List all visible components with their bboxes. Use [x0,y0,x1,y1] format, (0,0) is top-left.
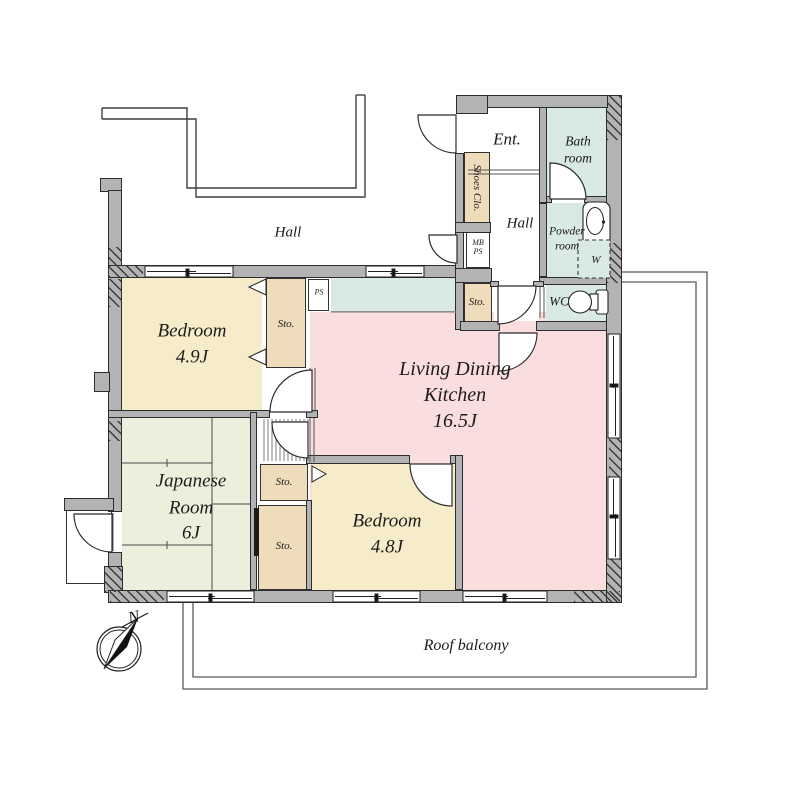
bedroom2-size-label: 4.8J [371,536,403,557]
outer-hall-label: Hall [275,225,302,242]
entrance-door [418,115,456,153]
wc-label: WC [549,295,569,310]
powder-room-label-2: room [555,241,579,254]
meter-box-label: MB PS [472,239,484,257]
alcove-door [74,514,112,552]
ldk-label-1: Living Dining [399,358,511,380]
japanese-room-label-1: Japanese [156,470,227,491]
bedroom1-door [270,370,312,412]
powder-room-label-1: Powder [549,226,585,239]
pipe-space-label: PS [315,289,324,298]
bedroom1-name-label: Bedroom [158,320,227,341]
bedroom1-size-label: 4.9J [176,346,208,367]
japanese-room-size-label: 6J [182,522,200,543]
storage-2-label: Sto. [276,540,293,552]
storage-hall-label: Sto. [469,296,486,308]
ldk-size-label: 16.5J [433,410,477,432]
washer-label: W [591,254,600,266]
linework-layer: N [0,0,800,800]
entrance-label: Ent. [493,129,521,148]
inner-hall-label: Hall [507,216,534,233]
doors [74,115,586,552]
vestibule-door [498,286,536,324]
floor-plan-canvas: N Bedroom 4.9J Japanese Room 6J Bedroom … [0,0,800,800]
japanese-room-label-2: Room [169,497,213,518]
storage-1-label: Sto. [276,476,293,488]
toilet-icon [569,290,609,314]
meter-box-label-ps: PS [472,248,484,257]
bathroom-door [550,163,586,199]
sliding-door-mark [254,508,259,556]
ldk-label-2: Kitchen [424,384,486,406]
corridor-railing [102,95,365,197]
storage-bedroom1-label: Sto. [278,318,295,330]
shoes-closet-label: Shoes Clo. [471,164,483,211]
bathroom-label-1: Bath [565,133,591,148]
bathroom-label-2: room [564,150,592,165]
compass-icon: N [97,606,148,671]
bedroom2-door [410,464,452,506]
meterbox-door [429,235,457,263]
roof-balcony-label: Roof balcony [424,637,509,655]
bedroom2-name-label: Bedroom [353,510,422,531]
nook-door [272,422,308,458]
